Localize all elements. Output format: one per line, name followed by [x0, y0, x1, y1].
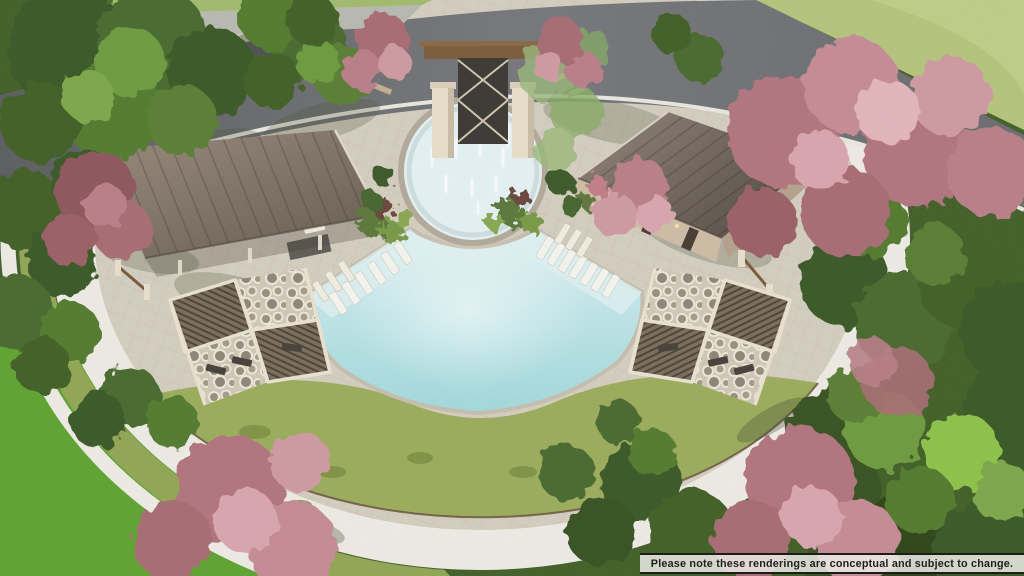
rendering-canvas [0, 0, 1024, 576]
disclaimer-bar: Please note these renderings are concept… [640, 553, 1024, 574]
grain-overlay [0, 0, 1024, 576]
rendering-viewport: Please note these renderings are concept… [0, 0, 1024, 576]
